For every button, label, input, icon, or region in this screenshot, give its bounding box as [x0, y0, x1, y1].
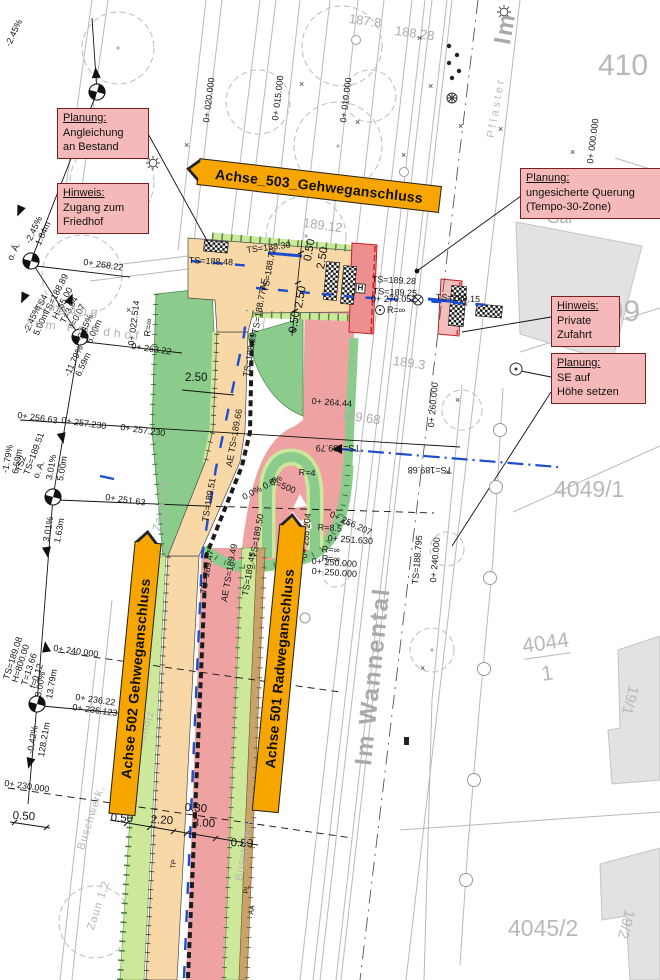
building-19-2	[600, 848, 660, 980]
annotation-angleichung: Planung: Angleichung an Bestand	[57, 108, 149, 159]
annotation-line: SE auf	[557, 371, 640, 386]
annotation-line: Zugang zum	[63, 201, 143, 216]
annotation-title: Hinweis:	[557, 299, 614, 314]
annotation-line: (Tempo-30-Zone)	[526, 200, 656, 215]
annotation-zugang-friedhof: Hinweis: Zugang zum Friedhof	[57, 183, 149, 234]
annotation-private-zufahrt: Hinweis: Private Zufahrt	[551, 296, 620, 347]
building-19-1	[608, 636, 660, 784]
annotation-title: Hinweis:	[63, 186, 143, 201]
annotation-line: an Bestand	[63, 140, 143, 155]
annotation-title: Planung:	[557, 356, 640, 371]
lamp-icon	[497, 5, 511, 19]
annotation-line: Private	[557, 314, 614, 329]
site-plan: 0+ 268.220+ 263.220+ 022.514R=∞0+ 256.63…	[0, 0, 660, 980]
annotation-line: Zufahrt	[557, 328, 614, 343]
annotation-line: Höhe setzen	[557, 385, 640, 400]
annotation-line: ungesicherte Querung	[526, 186, 656, 201]
annotation-title: Planung:	[526, 171, 656, 186]
annotation-title: Planung:	[63, 111, 143, 126]
annotation-line: Angleichung	[63, 126, 143, 141]
annotation-line: Friedhof	[63, 215, 143, 230]
annotation-se-hoehe: Planung: SE auf Höhe setzen	[551, 353, 646, 404]
annotation-querung: Planung: ungesicherte Querung (Tempo-30-…	[520, 168, 660, 219]
